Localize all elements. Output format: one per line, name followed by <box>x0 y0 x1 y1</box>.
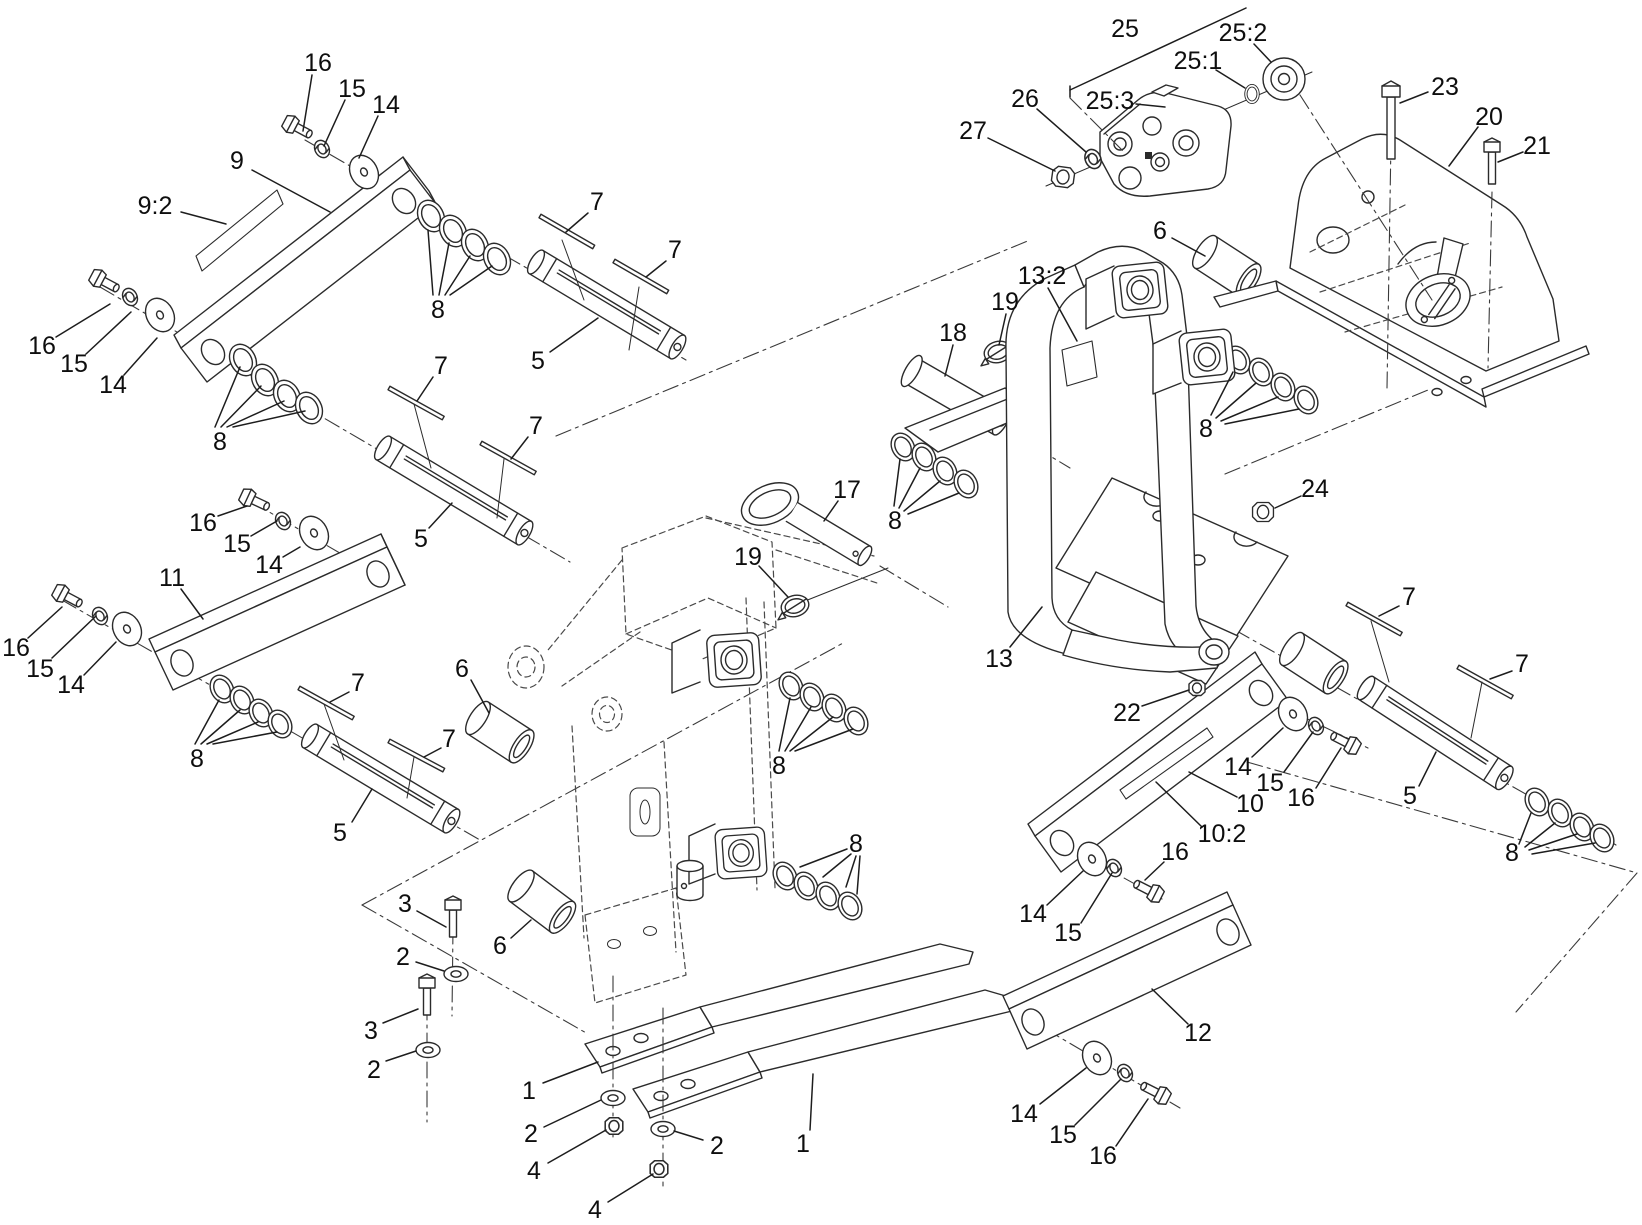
callout-label-10:2: 10:2 <box>1198 820 1247 848</box>
callout-label-26: 26 <box>1011 85 1039 113</box>
callout-label-8: 8 <box>190 745 204 773</box>
callout-leader-22 <box>1142 690 1189 706</box>
callout-leader-8 <box>1221 397 1278 421</box>
callout-leader-14 <box>1040 1068 1086 1104</box>
callout-label-16: 16 <box>1161 838 1189 866</box>
callout-leader-8 <box>846 856 856 887</box>
callout-label-2: 2 <box>710 1132 724 1160</box>
callout-leader-12 <box>1152 989 1188 1024</box>
callout-label-14: 14 <box>1010 1100 1038 1128</box>
callout-label-14: 14 <box>57 671 85 699</box>
callout-leader-7 <box>566 213 588 232</box>
callout-label-16: 16 <box>1089 1142 1117 1170</box>
phantom-lift-arm <box>508 516 880 1003</box>
bolt-21 <box>1484 138 1500 184</box>
callout-label-16: 16 <box>28 332 56 360</box>
callout-leader-16 <box>56 304 110 337</box>
callout-leader-3 <box>417 911 446 927</box>
callout-label-1: 1 <box>522 1077 536 1105</box>
exploded-view-drawing: 16151499:2877516151487751615141116151487… <box>0 0 1642 1225</box>
callout-label-2: 2 <box>396 943 410 971</box>
callout-leader-4 <box>548 1130 606 1163</box>
callout-label-6: 6 <box>455 655 469 683</box>
callout-label-5: 5 <box>333 819 347 847</box>
callout-leader-8 <box>428 230 433 295</box>
callout-leader-20 <box>1449 127 1478 166</box>
callout-label-7: 7 <box>434 352 448 380</box>
callout-label-6: 6 <box>1153 217 1167 245</box>
callout-leader-17 <box>824 501 838 521</box>
callout-leader-6 <box>511 920 531 938</box>
callout-label-14: 14 <box>99 371 127 399</box>
callout-label-21: 21 <box>1523 132 1551 160</box>
callout-leader-16 <box>303 75 312 131</box>
callout-label-17: 17 <box>833 476 861 504</box>
callout-leader-7 <box>417 377 433 401</box>
callout-leader-7 <box>1490 671 1512 679</box>
callout-label-2: 2 <box>367 1056 381 1084</box>
pivot-pins <box>298 248 1516 836</box>
callout-label-4: 4 <box>527 1157 541 1185</box>
callout-leader-2 <box>544 1100 601 1127</box>
callout-leader-2 <box>386 1051 416 1061</box>
callout-leader-14 <box>1047 871 1083 905</box>
callout-leader-2 <box>416 962 444 971</box>
callout-label-18: 18 <box>939 319 967 347</box>
callout-label-7: 7 <box>1515 650 1529 678</box>
callout-label-15: 15 <box>60 350 88 378</box>
callout-leader-5 <box>550 318 598 352</box>
callout-leader-14 <box>283 547 300 557</box>
callout-label-25:1: 25:1 <box>1174 47 1223 75</box>
callout-leader-15 <box>1081 873 1112 923</box>
callout-label-27: 27 <box>959 117 987 145</box>
link-arm-9 <box>174 157 436 382</box>
callout-leader-7 <box>1379 606 1399 616</box>
callout-leader-10:2 <box>1156 782 1202 827</box>
callout-label-13:2: 13:2 <box>1018 262 1067 290</box>
callout-leader-24 <box>1275 496 1301 508</box>
callout-label-24: 24 <box>1301 475 1329 503</box>
pulley <box>1263 58 1305 100</box>
parts-diagram-canvas: 16151499:2877516151487751615141116151487… <box>0 0 1642 1225</box>
callout-leader-8 <box>790 717 833 751</box>
callout-label-14: 14 <box>255 551 283 579</box>
callout-leader-8 <box>899 468 920 508</box>
callout-leader-8 <box>1519 813 1531 844</box>
callout-leader-27 <box>988 138 1055 171</box>
decal-13-2 <box>1062 341 1097 386</box>
callout-label-25:2: 25:2 <box>1219 19 1268 47</box>
callout-label-9: 9 <box>230 147 244 175</box>
callout-label-8: 8 <box>213 428 227 456</box>
callout-label-19: 19 <box>991 288 1019 316</box>
callout-leader-16 <box>28 607 62 638</box>
callout-leader-8 <box>779 698 790 751</box>
callout-label-5: 5 <box>414 525 428 553</box>
callout-label-8: 8 <box>772 752 786 780</box>
callout-label-20: 20 <box>1475 103 1503 131</box>
callout-leader-14 <box>1252 728 1283 757</box>
callout-label-1: 1 <box>796 1130 810 1158</box>
callout-leader-8 <box>894 459 900 506</box>
callout-label-25:3: 25:3 <box>1086 87 1135 115</box>
callout-label-14: 14 <box>1224 753 1252 781</box>
callout-label-23: 23 <box>1431 73 1459 101</box>
callout-label-14: 14 <box>1019 900 1047 928</box>
callout-leader-5 <box>352 789 372 822</box>
callout-leader-19 <box>999 314 1006 345</box>
callout-label-11: 11 <box>159 564 185 592</box>
callout-label-4: 4 <box>588 1196 602 1224</box>
callout-label-10: 10 <box>1236 790 1264 818</box>
callout-label-22: 22 <box>1113 699 1141 727</box>
callout-label-3: 3 <box>398 890 412 918</box>
callout-label-13: 13 <box>985 645 1013 673</box>
callout-label-7: 7 <box>590 188 604 216</box>
callout-leader-9 <box>252 170 330 212</box>
callout-label-15: 15 <box>1049 1121 1077 1149</box>
callout-label-8: 8 <box>431 296 445 324</box>
callout-leader-8 <box>439 243 449 295</box>
callout-leader-8 <box>800 849 847 867</box>
callout-leader-14 <box>84 642 116 675</box>
callout-leader-7 <box>646 261 666 277</box>
callout-label-9:2: 9:2 <box>138 192 173 220</box>
callout-leader-5 <box>1419 752 1436 786</box>
callout-leader-14 <box>124 338 157 375</box>
callout-leader-8 <box>1216 383 1256 418</box>
callout-label-7: 7 <box>351 669 365 697</box>
callout-leader-7 <box>424 748 441 757</box>
callout-label-8: 8 <box>888 507 902 535</box>
callout-leader-8 <box>857 856 860 894</box>
callout-leader-18 <box>945 345 953 376</box>
callout-label-12: 12 <box>1184 1019 1212 1047</box>
callout-leader-11 <box>181 589 203 619</box>
callout-label-6: 6 <box>493 932 507 960</box>
callout-label-16: 16 <box>189 509 217 537</box>
callout-label-5: 5 <box>531 347 545 375</box>
callout-leader-9:2 <box>181 212 226 224</box>
callout-leader-4 <box>608 1174 653 1202</box>
bearing-housings <box>672 630 767 901</box>
callout-leader-21 <box>1498 152 1523 162</box>
callout-label-15: 15 <box>1054 919 1082 947</box>
callout-label-15: 15 <box>223 530 251 558</box>
callout-leader-7 <box>330 692 349 702</box>
callout-leader-16 <box>218 506 247 516</box>
callout-leader-15 <box>1284 732 1313 772</box>
c-frame-bracket <box>905 246 1288 684</box>
callout-leader-2 <box>674 1131 703 1140</box>
callout-leader-5 <box>429 503 452 528</box>
decal-9-2 <box>196 190 283 271</box>
motor-nut <box>1051 166 1076 189</box>
cotter-clips-19 <box>773 338 1014 621</box>
callout-label-25: 25 <box>1111 15 1139 43</box>
callout-label-7: 7 <box>529 412 543 440</box>
callout-leader-8 <box>450 266 492 295</box>
callout-label-8: 8 <box>1505 839 1519 867</box>
callout-label-8: 8 <box>849 830 863 858</box>
callout-leader-8 <box>908 493 959 514</box>
callout-label-8: 8 <box>1199 415 1213 443</box>
callout-label-15: 15 <box>26 655 54 683</box>
frame-plate-lower <box>633 990 1016 1118</box>
callout-leader-8 <box>1225 409 1299 424</box>
callout-label-2: 2 <box>524 1120 538 1148</box>
callout-leader-15 <box>86 312 131 354</box>
callout-leader-7 <box>511 437 528 459</box>
callout-leader-26 <box>1037 109 1086 152</box>
callout-leader-16 <box>1316 748 1341 788</box>
callout-label-19: 19 <box>734 543 762 571</box>
callout-leader-14 <box>359 116 378 158</box>
callout-leader-8 <box>823 854 851 877</box>
callout-leader-23 <box>1400 92 1428 103</box>
callout-leader-1 <box>810 1074 813 1130</box>
callout-leader-8 <box>215 367 240 427</box>
callout-label-5: 5 <box>1403 782 1417 810</box>
motor-oring <box>1245 84 1260 103</box>
callout-label-7: 7 <box>442 725 456 753</box>
callout-label-16: 16 <box>1287 784 1315 812</box>
callout-leader-15 <box>1075 1079 1121 1125</box>
callout-leader-8 <box>227 401 284 427</box>
callout-label-15: 15 <box>338 75 366 103</box>
callout-leader-16 <box>1116 1099 1148 1146</box>
callout-leader-15 <box>52 616 96 658</box>
callout-leader-1 <box>543 1062 598 1083</box>
callout-label-7: 7 <box>1402 583 1416 611</box>
callout-leader-8 <box>195 700 219 744</box>
callout-leader-8 <box>904 481 940 511</box>
callout-leader-3 <box>383 1009 418 1023</box>
callout-label-16: 16 <box>304 49 332 77</box>
callout-label-7: 7 <box>668 236 682 264</box>
callout-leader-15 <box>324 100 345 146</box>
callout-label-3: 3 <box>364 1017 378 1045</box>
callout-leader-15 <box>251 521 277 536</box>
callout-label-14: 14 <box>372 91 400 119</box>
